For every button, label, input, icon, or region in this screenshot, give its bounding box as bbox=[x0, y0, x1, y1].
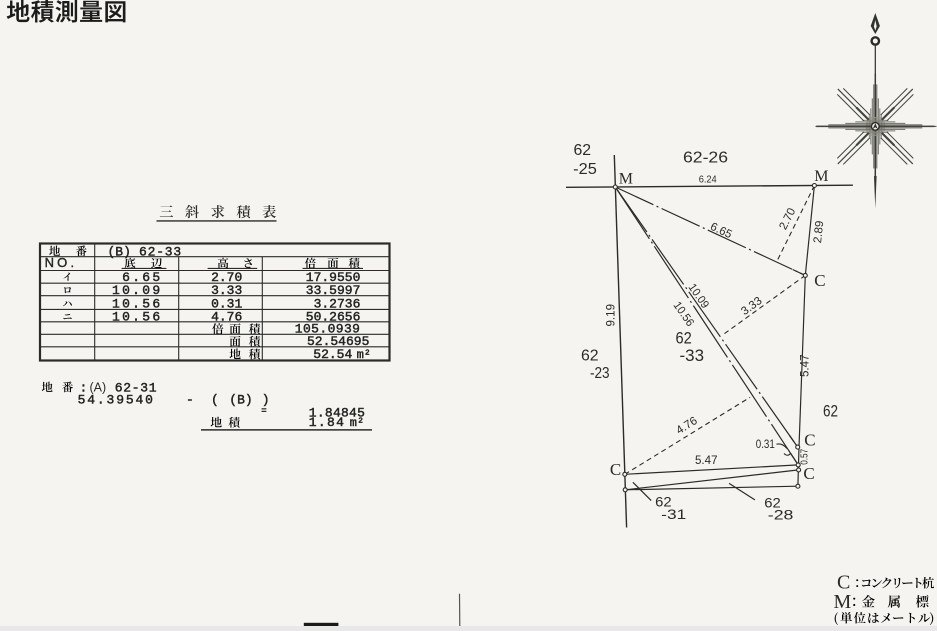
svg-text:-: - bbox=[186, 392, 194, 407]
svg-text:(B): (B) bbox=[229, 392, 252, 407]
svg-text:C: C bbox=[803, 464, 814, 483]
svg-text:m²: m² bbox=[350, 416, 364, 430]
svg-text:4.76: 4.76 bbox=[211, 310, 242, 325]
svg-text:(B): (B) bbox=[108, 245, 131, 260]
svg-text:NO.: NO. bbox=[45, 255, 78, 270]
svg-text:M: M bbox=[814, 168, 828, 185]
svg-text:-25: -25 bbox=[573, 161, 597, 178]
svg-text:C: C bbox=[804, 430, 815, 449]
svg-text:(: ( bbox=[211, 392, 219, 407]
svg-text:m²: m² bbox=[357, 348, 371, 362]
svg-text:-31: -31 bbox=[661, 506, 686, 522]
svg-text:10.56: 10.56 bbox=[112, 310, 163, 325]
svg-text:M: M bbox=[619, 170, 633, 187]
svg-text:52.54: 52.54 bbox=[313, 347, 352, 362]
svg-text:6.24: 6.24 bbox=[699, 173, 717, 185]
svg-text:1.84: 1.84 bbox=[309, 415, 345, 430]
svg-text:5.47: 5.47 bbox=[695, 455, 718, 467]
svg-text:C: C bbox=[610, 460, 621, 479]
svg-text:9.19: 9.19 bbox=[606, 304, 618, 327]
svg-text:62: 62 bbox=[676, 329, 692, 348]
svg-text:0.31: 0.31 bbox=[756, 439, 775, 451]
svg-text:54.39540: 54.39540 bbox=[78, 392, 155, 407]
svg-text:0.57: 0.57 bbox=[799, 449, 811, 465]
svg-text:62: 62 bbox=[574, 142, 592, 159]
svg-text:-28: -28 bbox=[768, 507, 794, 523]
svg-text:=: = bbox=[261, 406, 266, 416]
svg-text:2.89: 2.89 bbox=[812, 220, 826, 244]
svg-text:62: 62 bbox=[581, 347, 599, 364]
svg-text:-33: -33 bbox=[680, 346, 705, 365]
svg-text:62-26: 62-26 bbox=[683, 150, 728, 167]
svg-text:5.47: 5.47 bbox=[800, 355, 812, 378]
svg-text:M: M bbox=[834, 591, 852, 613]
svg-text:-23: -23 bbox=[590, 365, 610, 382]
svg-text:62: 62 bbox=[823, 402, 838, 421]
svg-text:C: C bbox=[814, 271, 825, 290]
svg-text:62-33: 62-33 bbox=[139, 245, 182, 260]
